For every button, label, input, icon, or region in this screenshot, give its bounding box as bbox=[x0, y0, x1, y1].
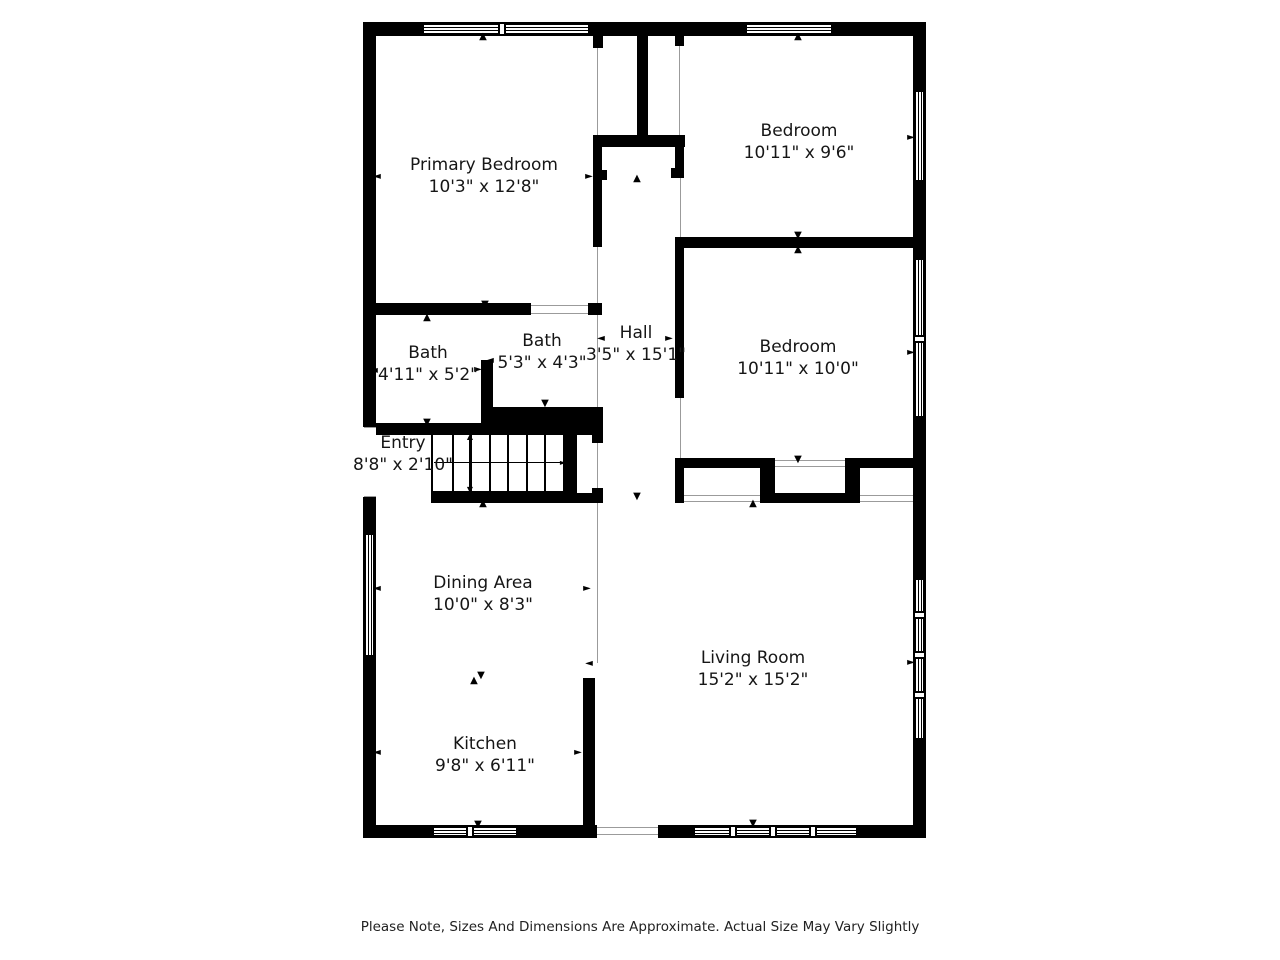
wall bbox=[593, 135, 685, 147]
door-arrow-icon: ▼ bbox=[474, 820, 482, 830]
wall bbox=[592, 435, 603, 443]
window-pane-line bbox=[434, 830, 516, 831]
door-arrow-icon: ▼ bbox=[541, 399, 549, 409]
door-arrow-icon: ▲ bbox=[794, 245, 802, 255]
room-name: Bath bbox=[378, 342, 478, 364]
window-mullion bbox=[466, 827, 474, 836]
room-dimensions: 3'5" x 15'1" bbox=[586, 344, 686, 366]
room-name: Bedroom bbox=[737, 336, 859, 358]
door-arrow-icon: ▲ bbox=[470, 676, 478, 686]
room-name: Bedroom bbox=[744, 120, 855, 142]
window-mullion bbox=[498, 24, 506, 34]
window bbox=[915, 258, 924, 418]
window-pane-line bbox=[747, 30, 831, 31]
opening-line bbox=[860, 495, 913, 496]
door-arrow-icon: ◄ bbox=[585, 659, 593, 669]
door-arrow-icon: ▼ bbox=[749, 819, 757, 829]
stair-extent-line bbox=[469, 437, 470, 490]
wall bbox=[760, 493, 860, 503]
room-label-bath: Bath5'3" x 4'3" bbox=[497, 330, 586, 374]
window-pane-line bbox=[368, 535, 369, 655]
floor-plan-page: ►▲▼▲▲◄►▲►▼▲◄►►▼▲◄►◄▼▼▼▲▼▲◄◄►◄►►▼▼▲▼▲Prim… bbox=[0, 0, 1280, 960]
opening-line bbox=[680, 178, 681, 237]
opening-line bbox=[597, 247, 598, 303]
door-arrow-icon: ► bbox=[583, 584, 591, 594]
room-label-hall: Hall3'5" x 15'1" bbox=[586, 322, 686, 366]
wall bbox=[583, 678, 595, 838]
door-arrow-icon: ▲ bbox=[749, 499, 757, 509]
opening-line bbox=[531, 313, 588, 314]
door-arrow-icon: ► bbox=[907, 658, 915, 668]
opening-line bbox=[679, 46, 680, 135]
door-arrow-icon: ▲ bbox=[423, 313, 431, 323]
room-name: Bath bbox=[497, 330, 586, 352]
wall bbox=[363, 303, 531, 315]
room-dimensions: 10'3" x 12'8" bbox=[410, 176, 558, 198]
door-arrow-icon: ◄ bbox=[370, 366, 378, 376]
door-arrow-icon: ▲ bbox=[633, 174, 641, 184]
door-arrow-icon: ▼ bbox=[633, 492, 641, 502]
opening-line bbox=[680, 398, 681, 458]
opening-line bbox=[597, 834, 658, 835]
room-dimensions: 4'11" x 5'2" bbox=[378, 364, 478, 386]
wall bbox=[431, 493, 603, 503]
window-pane-line bbox=[918, 580, 919, 738]
window-pane-line bbox=[371, 535, 372, 655]
wall bbox=[588, 303, 602, 315]
wall bbox=[593, 147, 602, 247]
window-mullion bbox=[769, 827, 777, 836]
room-label-kitchen: Kitchen9'8" x 6'11" bbox=[435, 733, 535, 777]
room-label-entry: Entry8'8" x 2'10" bbox=[353, 432, 453, 476]
window-mullion bbox=[729, 827, 737, 836]
room-label-bath: Bath4'11" x 5'2" bbox=[378, 342, 478, 386]
door-arrow-icon: ▲ bbox=[479, 499, 487, 509]
stair-tread-line bbox=[526, 435, 528, 491]
room-dimensions: 10'11" x 10'0" bbox=[737, 358, 859, 380]
room-dimensions: 10'0" x 8'3" bbox=[433, 594, 533, 616]
door-arrow-icon: ◄ bbox=[373, 584, 381, 594]
opening-line bbox=[775, 466, 845, 467]
stair-direction-line bbox=[434, 462, 561, 463]
opening-line bbox=[684, 495, 760, 496]
room-dimensions: 8'8" x 2'10" bbox=[353, 454, 453, 476]
wall bbox=[602, 170, 607, 180]
window bbox=[693, 827, 858, 836]
room-dimensions: 5'3" x 4'3" bbox=[497, 352, 586, 374]
door-arrow-icon: ► bbox=[907, 133, 915, 143]
room-name: Dining Area bbox=[433, 572, 533, 594]
door-arrow-icon: ◄ bbox=[373, 748, 381, 758]
room-label-bedroom: Bedroom10'11" x 9'6" bbox=[744, 120, 855, 164]
room-label-living-room: Living Room15'2" x 15'2" bbox=[698, 647, 809, 691]
window-mullion bbox=[809, 827, 817, 836]
stair-tread-line bbox=[544, 435, 546, 491]
window-pane-line bbox=[921, 92, 922, 180]
door-arrow-icon: ▼ bbox=[481, 300, 489, 310]
door-arrow-icon: ► bbox=[574, 748, 582, 758]
window bbox=[422, 24, 590, 34]
wall bbox=[671, 168, 675, 178]
room-dimensions: 15'2" x 15'2" bbox=[698, 669, 809, 691]
opening-line bbox=[775, 460, 845, 461]
wall bbox=[675, 458, 684, 503]
window bbox=[915, 578, 924, 740]
room-dimensions: 9'8" x 6'11" bbox=[435, 755, 535, 777]
window-pane-line bbox=[434, 833, 516, 834]
stair-arrow-icon: ▼ bbox=[467, 486, 473, 494]
door-arrow-icon: ▼ bbox=[794, 231, 802, 241]
door-arrow-icon: ► bbox=[585, 172, 593, 182]
window bbox=[365, 533, 374, 657]
window-pane-line bbox=[747, 27, 831, 28]
room-name: Hall bbox=[586, 322, 686, 344]
door-arrow-icon: ▼ bbox=[794, 455, 802, 465]
wall bbox=[481, 407, 603, 435]
window-pane-line bbox=[424, 27, 588, 28]
wall bbox=[637, 36, 648, 141]
door-arrow-icon: ▲ bbox=[479, 32, 487, 42]
wall bbox=[675, 135, 684, 178]
door-arrow-icon: ◄ bbox=[373, 172, 381, 182]
wall bbox=[675, 36, 684, 46]
window-mullion bbox=[915, 691, 924, 699]
window-pane-line bbox=[918, 92, 919, 180]
stair-tread-line bbox=[489, 435, 491, 491]
room-label-dining-area: Dining Area10'0" x 8'3" bbox=[433, 572, 533, 616]
window-mullion bbox=[915, 335, 924, 343]
wall bbox=[593, 36, 603, 48]
room-name: Primary Bedroom bbox=[410, 154, 558, 176]
door-arrow-icon: ▲ bbox=[364, 500, 372, 510]
window-pane-line bbox=[921, 580, 922, 738]
window-pane-line bbox=[424, 30, 588, 31]
floor-plan: ►▲▼▲▲◄►▲►▼▲◄►►▼▲◄►◄▼▼▼▲▼▲◄◄►◄►►▼▼▲▼▲Prim… bbox=[0, 0, 1280, 960]
room-label-bedroom: Bedroom10'11" x 10'0" bbox=[737, 336, 859, 380]
disclaimer-text: Please Note, Sizes And Dimensions Are Ap… bbox=[0, 919, 1280, 935]
room-label-primary-bedroom: Primary Bedroom10'3" x 12'8" bbox=[410, 154, 558, 198]
room-dimensions: 10'11" x 9'6" bbox=[744, 142, 855, 164]
opening-line bbox=[597, 443, 598, 488]
opening-line bbox=[364, 427, 376, 428]
opening-line bbox=[860, 501, 913, 502]
room-name: Living Room bbox=[698, 647, 809, 669]
opening-line bbox=[597, 503, 598, 663]
door-arrow-icon: ◄ bbox=[486, 356, 494, 366]
door-arrow-icon: ► bbox=[907, 348, 915, 358]
door-arrow-icon: ▲ bbox=[794, 32, 802, 42]
opening-line bbox=[531, 305, 588, 306]
opening-line bbox=[597, 827, 658, 828]
opening-line bbox=[597, 48, 598, 135]
door-arrow-icon: ▼ bbox=[477, 671, 485, 681]
stair-arrow-icon: ▲ bbox=[467, 433, 473, 441]
room-name: Entry bbox=[353, 432, 453, 454]
room-name: Kitchen bbox=[435, 733, 535, 755]
stair-arrow-icon: ► bbox=[560, 459, 566, 467]
stair-tread-line bbox=[470, 435, 472, 491]
stair-tread-line bbox=[507, 435, 509, 491]
window-mullion bbox=[915, 651, 924, 659]
window-mullion bbox=[915, 611, 924, 619]
opening-line bbox=[364, 496, 376, 497]
window bbox=[915, 90, 924, 182]
door-arrow-icon: ▼ bbox=[423, 418, 431, 428]
window bbox=[745, 24, 833, 34]
